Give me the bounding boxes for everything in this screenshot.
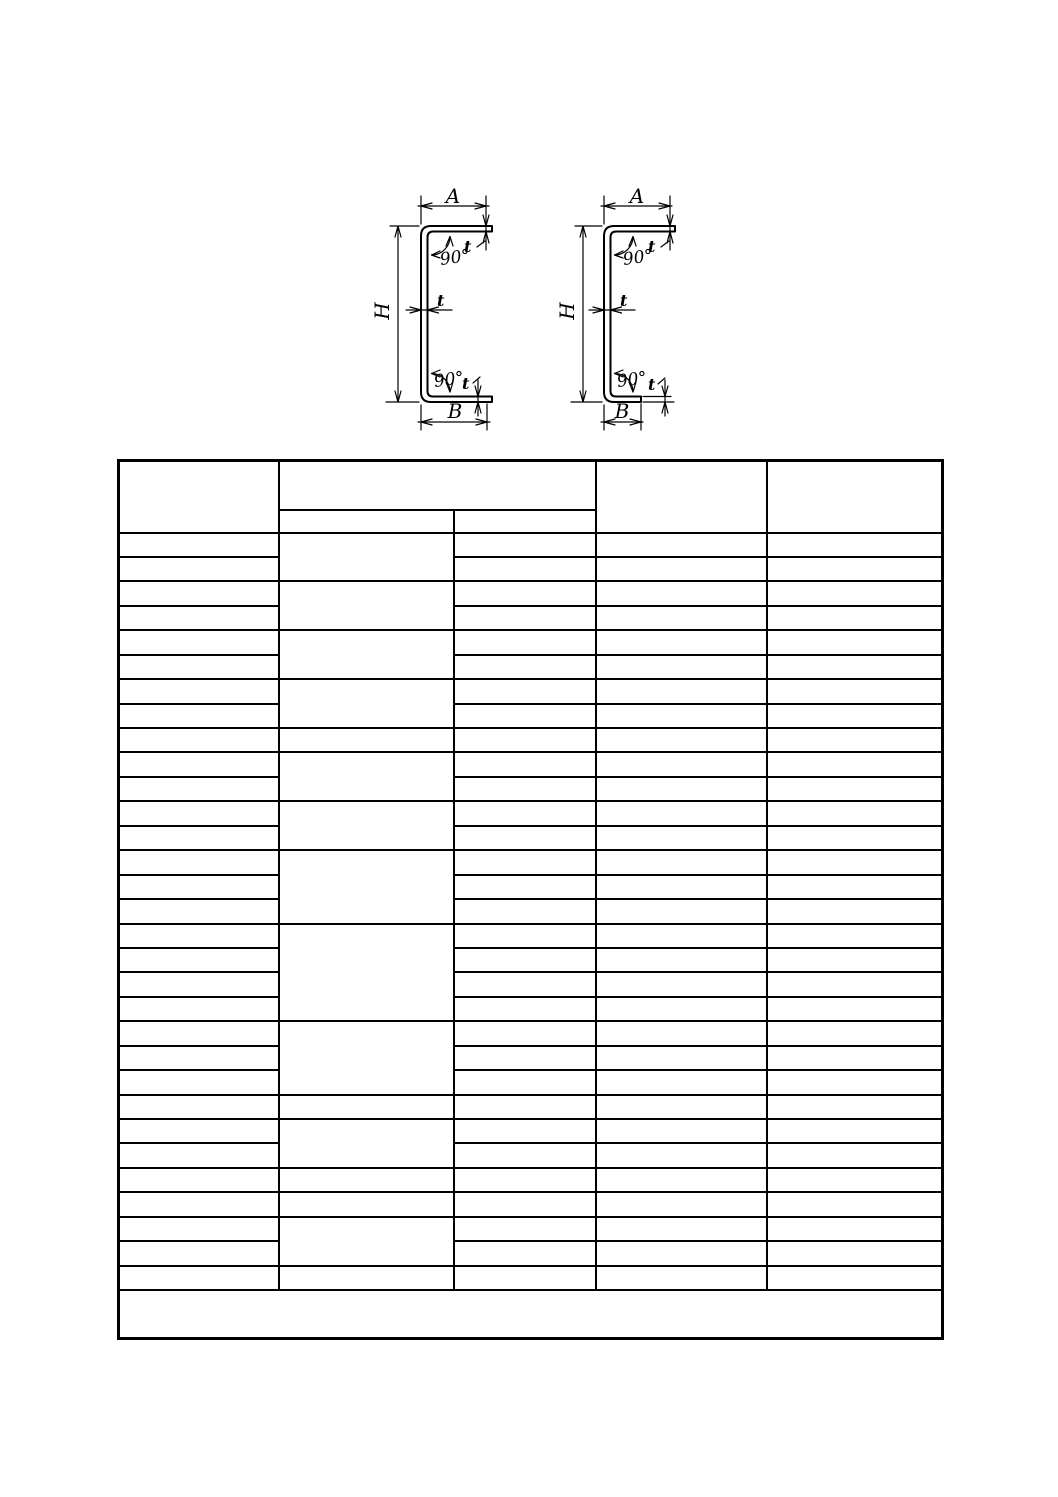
table-row xyxy=(119,630,943,654)
body-cell xyxy=(119,728,279,752)
left-dim-t-bottom-label: t xyxy=(462,374,470,393)
spec-table-footer xyxy=(119,1290,943,1338)
body-cell xyxy=(767,1070,943,1094)
table-row xyxy=(119,1070,943,1094)
table-row xyxy=(119,899,943,923)
body-cell xyxy=(279,728,454,752)
body-cell xyxy=(119,581,279,605)
table-row xyxy=(119,1217,943,1241)
body-cell xyxy=(119,777,279,801)
table-row xyxy=(119,1192,943,1216)
left-angle-top-label: 90° xyxy=(439,246,472,270)
body-cell xyxy=(767,1143,943,1167)
body-cell xyxy=(454,1241,596,1265)
body-cell xyxy=(596,581,767,605)
table-row xyxy=(119,1095,943,1119)
right-dim-t-web: t xyxy=(589,291,635,313)
body-cell xyxy=(454,801,596,825)
header-dims-group xyxy=(279,461,596,510)
table-row xyxy=(119,1241,943,1265)
body-cell xyxy=(596,630,767,654)
body-cell xyxy=(596,826,767,850)
table-row xyxy=(119,1021,943,1045)
body-cell xyxy=(454,581,596,605)
right-dim-t-bottom: t xyxy=(643,375,674,416)
table-row xyxy=(119,948,943,972)
body-cell xyxy=(767,557,943,581)
left-dim-h-label: H xyxy=(370,302,394,321)
body-cell xyxy=(767,752,943,776)
body-cell xyxy=(119,606,279,630)
left-dim-t-bottom: t xyxy=(462,374,481,416)
right-dim-b-label: B xyxy=(614,399,630,423)
body-cell xyxy=(767,1046,943,1070)
body-cell xyxy=(119,801,279,825)
body-cell xyxy=(119,1095,279,1119)
body-cell xyxy=(454,533,596,557)
table-row xyxy=(119,655,943,679)
body-cell xyxy=(767,826,943,850)
body-cell xyxy=(119,1266,279,1290)
header-col4 xyxy=(596,461,767,533)
body-cell xyxy=(279,679,454,728)
body-cell xyxy=(454,704,596,728)
left-dim-b-label: B xyxy=(447,399,463,423)
spec-table xyxy=(117,459,944,1340)
table-row xyxy=(119,1143,943,1167)
body-cell xyxy=(279,533,454,582)
table-row xyxy=(119,606,943,630)
body-cell xyxy=(119,1046,279,1070)
body-cell xyxy=(454,1217,596,1241)
body-cell xyxy=(596,850,767,874)
right-dim-h: H xyxy=(555,226,602,402)
body-cell xyxy=(596,1119,767,1143)
body-cell xyxy=(767,581,943,605)
body-cell xyxy=(454,1168,596,1192)
channel-diagrams: A H t t xyxy=(355,183,695,445)
body-cell xyxy=(767,1266,943,1290)
body-cell xyxy=(119,1021,279,1045)
table-row xyxy=(119,850,943,874)
table-row xyxy=(119,679,943,703)
body-cell xyxy=(454,655,596,679)
body-cell xyxy=(596,533,767,557)
body-cell xyxy=(596,1192,767,1216)
body-cell xyxy=(454,630,596,654)
body-cell xyxy=(596,924,767,948)
body-cell xyxy=(119,875,279,899)
body-cell xyxy=(767,1095,943,1119)
body-cell xyxy=(596,899,767,923)
body-cell xyxy=(596,1217,767,1241)
body-cell xyxy=(767,533,943,557)
body-cell xyxy=(119,948,279,972)
body-cell xyxy=(454,606,596,630)
body-cell xyxy=(279,581,454,630)
table-row xyxy=(119,533,943,557)
body-cell xyxy=(119,1241,279,1265)
left-channel-diagram: A H t t xyxy=(370,184,492,430)
body-cell xyxy=(767,777,943,801)
table-row xyxy=(119,826,943,850)
table-row xyxy=(119,728,943,752)
body-cell xyxy=(454,1095,596,1119)
body-cell xyxy=(596,1070,767,1094)
table-row xyxy=(119,704,943,728)
table-row xyxy=(119,557,943,581)
body-cell xyxy=(279,1119,454,1168)
body-cell xyxy=(596,606,767,630)
footer-note-cell xyxy=(119,1290,943,1338)
right-dim-a-label: A xyxy=(628,184,644,208)
body-cell xyxy=(119,655,279,679)
table-row xyxy=(119,972,943,996)
header-dims-sub-left xyxy=(279,510,454,533)
left-angle-bottom: 90° xyxy=(432,368,466,392)
body-cell xyxy=(596,801,767,825)
right-angle-bottom-label: 90° xyxy=(616,368,649,392)
body-cell xyxy=(767,728,943,752)
body-cell xyxy=(767,1192,943,1216)
body-cell xyxy=(279,1266,454,1290)
body-cell xyxy=(767,997,943,1021)
body-cell xyxy=(119,679,279,703)
body-cell xyxy=(767,948,943,972)
body-cell xyxy=(596,1143,767,1167)
body-cell xyxy=(767,630,943,654)
body-cell xyxy=(119,1070,279,1094)
body-cell xyxy=(454,1021,596,1045)
body-cell xyxy=(454,1266,596,1290)
body-cell xyxy=(767,875,943,899)
left-dim-a: A xyxy=(418,184,489,250)
body-cell xyxy=(596,875,767,899)
body-cell xyxy=(767,1021,943,1045)
body-cell xyxy=(279,1168,454,1192)
body-cell xyxy=(119,1119,279,1143)
spec-table-body xyxy=(119,533,943,1291)
body-cell xyxy=(767,704,943,728)
body-cell xyxy=(767,1168,943,1192)
body-cell xyxy=(279,924,454,1022)
spec-table-header xyxy=(119,461,943,533)
left-angle-bottom-label: 90° xyxy=(433,368,466,392)
table-row xyxy=(119,581,943,605)
body-cell xyxy=(767,1217,943,1241)
table-row xyxy=(119,752,943,776)
body-cell xyxy=(454,1143,596,1167)
document-page: A H t t xyxy=(0,0,1058,1497)
body-cell xyxy=(596,1095,767,1119)
body-cell xyxy=(596,704,767,728)
footer-row xyxy=(119,1290,943,1338)
body-cell xyxy=(119,557,279,581)
table-row xyxy=(119,875,943,899)
body-cell xyxy=(279,1095,454,1119)
body-cell xyxy=(119,899,279,923)
left-dim-t-web-label: t xyxy=(437,291,445,310)
body-cell xyxy=(454,557,596,581)
header-col1 xyxy=(119,461,279,533)
table-row xyxy=(119,1119,943,1143)
table-row xyxy=(119,1266,943,1290)
body-cell xyxy=(454,924,596,948)
body-cell xyxy=(454,752,596,776)
body-cell xyxy=(119,997,279,1021)
body-cell xyxy=(454,679,596,703)
header-col5 xyxy=(767,461,943,533)
body-cell xyxy=(454,777,596,801)
body-cell xyxy=(454,899,596,923)
body-cell xyxy=(454,1046,596,1070)
table-row xyxy=(119,997,943,1021)
body-cell xyxy=(454,850,596,874)
body-cell xyxy=(454,972,596,996)
body-cell xyxy=(596,1168,767,1192)
right-channel-diagram: A H t t xyxy=(555,184,675,430)
right-dim-b: B xyxy=(601,399,643,430)
body-cell xyxy=(767,1119,943,1143)
body-cell xyxy=(279,630,454,679)
body-cell xyxy=(596,655,767,679)
body-cell xyxy=(596,777,767,801)
body-cell xyxy=(596,679,767,703)
body-cell xyxy=(119,1143,279,1167)
body-cell xyxy=(596,728,767,752)
right-angle-top-label: 90° xyxy=(622,246,655,270)
body-cell xyxy=(119,1192,279,1216)
body-cell xyxy=(279,1217,454,1266)
body-cell xyxy=(454,1070,596,1094)
body-cell xyxy=(119,704,279,728)
right-dim-t-web-label: t xyxy=(620,291,628,310)
body-cell xyxy=(454,997,596,1021)
body-cell xyxy=(767,801,943,825)
body-cell xyxy=(119,1217,279,1241)
body-cell xyxy=(119,924,279,948)
body-cell xyxy=(454,875,596,899)
body-cell xyxy=(119,826,279,850)
body-cell xyxy=(767,850,943,874)
header-row-main xyxy=(119,461,943,510)
body-cell xyxy=(596,557,767,581)
right-dim-a: A xyxy=(601,184,672,250)
body-cell xyxy=(596,1021,767,1045)
body-cell xyxy=(596,752,767,776)
body-cell xyxy=(767,606,943,630)
body-cell xyxy=(767,899,943,923)
table-row xyxy=(119,1046,943,1070)
body-cell xyxy=(767,679,943,703)
left-dim-b: B xyxy=(418,399,490,430)
body-cell xyxy=(596,997,767,1021)
body-cell xyxy=(596,1046,767,1070)
table-row xyxy=(119,1168,943,1192)
table-row xyxy=(119,924,943,948)
left-dim-h: H xyxy=(370,226,419,402)
body-cell xyxy=(596,1241,767,1265)
body-cell xyxy=(454,1192,596,1216)
body-cell xyxy=(767,972,943,996)
body-cell xyxy=(767,655,943,679)
body-cell xyxy=(279,1192,454,1216)
body-cell xyxy=(119,1168,279,1192)
table-row xyxy=(119,777,943,801)
header-dims-sub-right xyxy=(454,510,596,533)
left-dim-t-web: t xyxy=(406,291,452,313)
body-cell xyxy=(279,752,454,801)
body-cell xyxy=(119,752,279,776)
body-cell xyxy=(279,850,454,923)
body-cell xyxy=(454,826,596,850)
body-cell xyxy=(279,1021,454,1094)
left-dim-a-label: A xyxy=(444,184,460,208)
body-cell xyxy=(767,1241,943,1265)
right-dim-h-label: H xyxy=(555,302,579,321)
body-cell xyxy=(119,630,279,654)
body-cell xyxy=(454,948,596,972)
body-cell xyxy=(767,924,943,948)
body-cell xyxy=(596,972,767,996)
body-cell xyxy=(119,533,279,557)
body-cell xyxy=(454,1119,596,1143)
table-row xyxy=(119,801,943,825)
body-cell xyxy=(596,948,767,972)
right-dim-t-bottom-label: t xyxy=(648,375,656,394)
body-cell xyxy=(119,850,279,874)
right-angle-bottom: 90° xyxy=(615,368,649,392)
body-cell xyxy=(119,972,279,996)
body-cell xyxy=(454,728,596,752)
body-cell xyxy=(279,801,454,850)
body-cell xyxy=(596,1266,767,1290)
